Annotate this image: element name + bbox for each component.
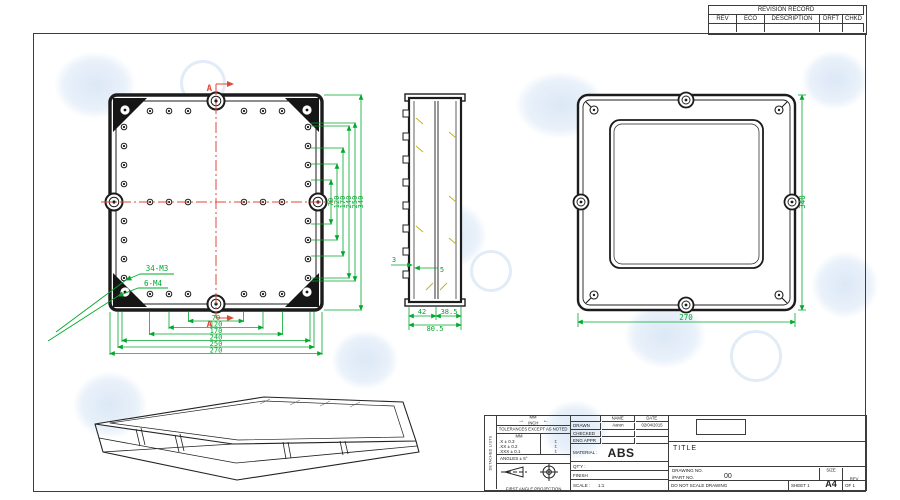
svg-text:340: 340 [357,196,365,209]
material-value: ABS [608,446,635,460]
title-row: TITLE [669,441,866,467]
projection-row: FIRST ANGLE PROJECTION [497,464,570,490]
date-header: DATE [647,416,658,420]
title-block-side-strip: DETACHED LISTS [485,416,497,489]
back-view: 270 340 [574,93,808,328]
thread-note-34-m3: 34-M3 [146,264,169,273]
units-indicator: → MM INCH ← [497,416,570,426]
tolerance-section: → MM INCH ← TOLERANCES EXCEPT AS NOTED M… [497,416,571,490]
units-inch-label: INCH [528,421,538,425]
svg-text:38.5: 38.5 [441,308,458,316]
material-row: MATERIAL : ABS [571,445,668,462]
tol-inch: ± [554,449,556,453]
front-bottom-dim-labels: 70 120 170 240 250 270 [210,314,223,355]
svg-text:42: 42 [418,308,426,316]
part-no-value: 00 [724,473,732,480]
svg-text:270: 270 [210,347,223,355]
thread-note-6-m4: 6-M4 [144,279,163,288]
finish-row: FINISH [571,472,668,480]
drawn-label: DRAWN [573,424,590,429]
scale-value: 1:1 [598,483,604,488]
title-label: TITLE [673,445,697,452]
svg-text:5: 5 [440,266,444,274]
drawing-sheet: { "colors": { "line": "#1c1c1c", "dimens… [0,0,900,500]
tolerance-note: TOLERANCES EXCEPT AS NOTED [497,426,570,434]
title-block: DETACHED LISTS → MM INCH ← TOLERANCES EX… [484,415,867,491]
arrow-left-icon: ← [543,418,549,424]
drawing-no-cell: DRAWING NO. /PART NO. 00 [669,468,820,481]
isometric-view [95,397,419,480]
rev-cell: REV [843,468,866,481]
qty-row: QT'Y : [571,463,668,471]
size-label: SIZE [823,469,838,473]
angles-tolerance: ANGLES ± 5° [497,455,570,464]
front-right-dim-labels: 70 120 170 240 250 340 [327,196,365,209]
sheet-cell: SHEET 1 [789,481,843,490]
tol-inch: ± [554,439,556,443]
arrow-right-icon: → [518,418,524,424]
units-mm-label: MM [530,415,537,419]
drawn-name: Aaron [612,424,623,428]
scale-row: SCALE : 1:1 [571,481,668,490]
drawing-no-label: DRAWING NO. [672,469,703,474]
tolerance-grid: MM .X ± 0.3 .XX ± 0.2 .XXX ± 0.1 ± ± ± [497,434,570,455]
back-width-dim: 270 [679,313,693,322]
tol-mm-header: MM [515,434,522,438]
first-angle-projection-icon [497,464,570,481]
tol-inch: ± [554,444,556,448]
material-label: MATERIAL : [573,451,598,456]
title-section: TITLE DRAWING NO. /PART NO. 00 SIZE A4 R… [669,416,866,490]
eng-appr-label: ENG APPR [573,438,596,443]
svg-text:80.5: 80.5 [427,325,444,333]
drawn-date: 02/04/2015 [641,424,662,428]
svg-text:3: 3 [392,256,396,264]
tol-row: .XXX ± 0.1 [499,449,520,454]
scale-label: SCALE : [573,483,590,488]
projection-label: FIRST ANGLE PROJECTION [506,488,561,492]
of-cell: OF 1 [843,481,866,490]
part-no-label: /PART NO. [672,476,694,481]
tol-row: .X ± 0.3 [499,439,514,444]
tol-row: .XX ± 0.2 [499,444,517,449]
front-view: A A 70 120 170 240 [48,84,365,355]
logo-box [696,419,746,435]
approvals-section: NAME DATE DRAWN Aaron 02/04/2015 CHECKED… [571,416,669,490]
back-height-dim: 340 [798,195,807,209]
section-label-top: A [207,84,213,94]
checked-label: CHECKED [573,431,595,436]
name-header: NAME [612,416,624,420]
side-view: 42 38.5 80.5 3 5 [391,94,465,333]
size-cell: SIZE A4 [820,468,843,481]
do-not-scale-cell: DO NOT SCALE DRAWING [669,481,789,490]
